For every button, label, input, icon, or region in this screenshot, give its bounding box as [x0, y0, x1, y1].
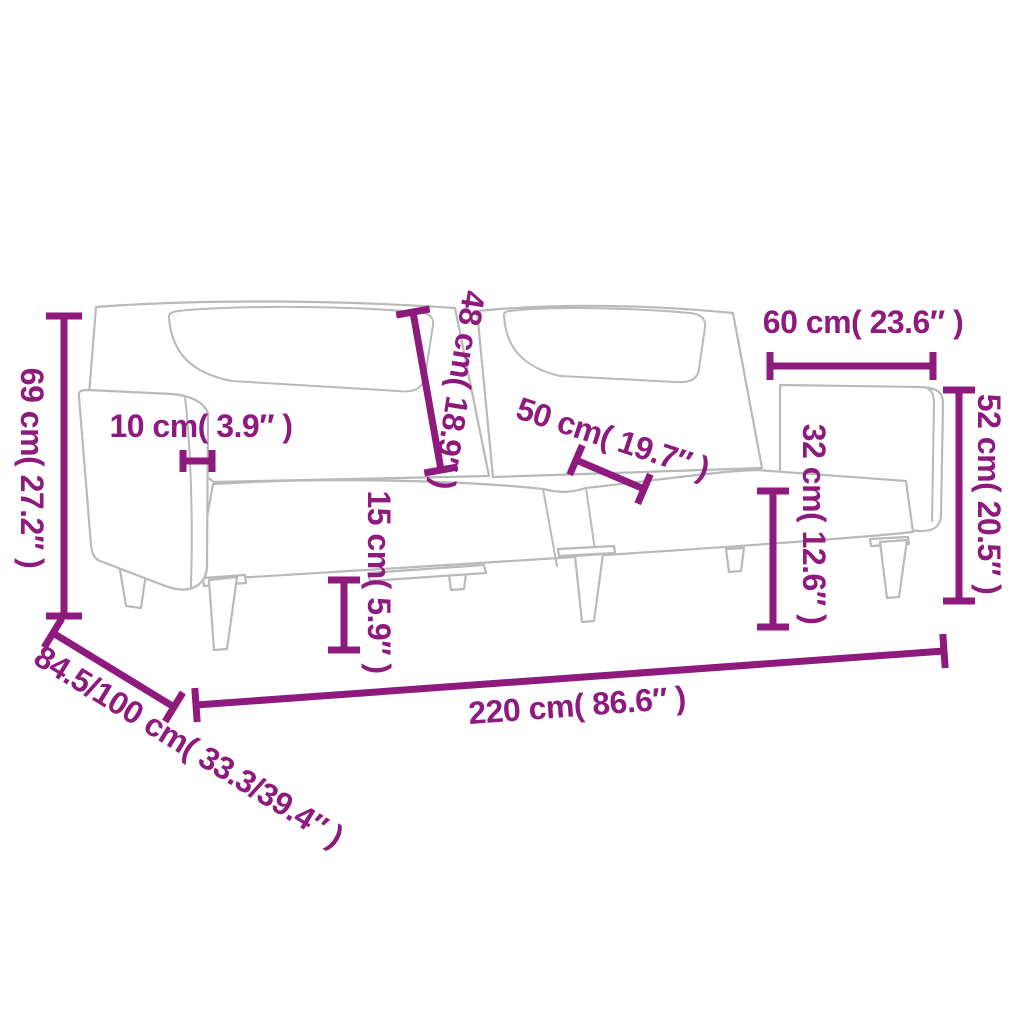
label-overall-depth: 84.5/100 cm( 33.3/39.4″ ): [28, 638, 350, 854]
dimension-armrest-length: 60 cm( 23.6″ ): [763, 304, 963, 380]
dimension-overall-depth: 84.5/100 cm( 33.3/39.4″ ): [28, 619, 350, 855]
dimension-overall-height: 69 cm( 27.2″ ): [14, 316, 82, 616]
sofa-leg-front-center: [575, 554, 603, 622]
sofa-leg-front-left: [209, 577, 237, 650]
sofa-leg-rear-right: [726, 548, 744, 572]
label-armrest-length: 60 cm( 23.6″ ): [763, 304, 963, 340]
label-seat-height: 32 cm( 12.6″ ): [796, 424, 832, 624]
label-armrest-height: 52 cm( 20.5″ ): [971, 394, 1007, 594]
dimension-overall-width: 220 cm( 86.6″ ): [195, 634, 945, 731]
dimension-armrest-height: 52 cm( 20.5″ ): [943, 390, 1007, 601]
label-overall-width: 220 cm( 86.6″ ): [467, 679, 687, 731]
product-dimension-image: 69 cm( 27.2″ ) 10 cm( 3.9″ ) 48 cm( 18.9…: [0, 0, 1024, 1024]
sofa-leg-front-right: [880, 540, 907, 598]
label-overall-height: 69 cm( 27.2″ ): [14, 368, 50, 568]
label-leg-height: 15 cm( 5.9″ ): [361, 490, 397, 673]
label-armrest-thickness: 10 cm( 3.9″ ): [109, 408, 292, 444]
dimension-diagram-canvas: 69 cm( 27.2″ ) 10 cm( 3.9″ ) 48 cm( 18.9…: [0, 0, 1024, 1024]
